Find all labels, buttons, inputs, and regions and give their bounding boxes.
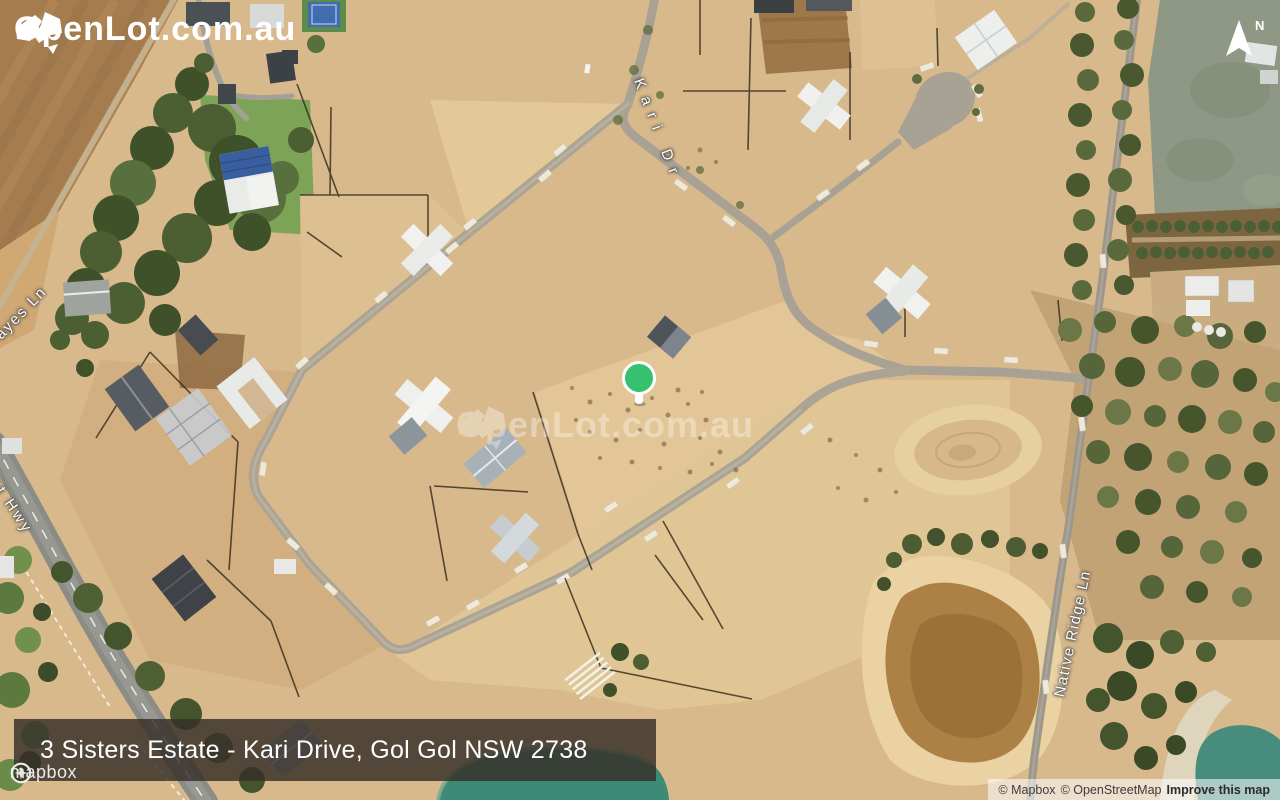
attribution-osm-link[interactable]: © OpenStreetMap [1061, 783, 1162, 797]
attribution-mapbox-link[interactable]: © Mapbox [998, 783, 1055, 797]
mapbox-logo[interactable]: mapbox [10, 762, 77, 783]
mapbox-icon [10, 762, 32, 784]
map-viewport[interactable]: OpenLot.com.au OpenLot.com.au N Kari Dr … [0, 0, 1280, 800]
tennis-court [302, 0, 346, 32]
solar-roof-house [219, 146, 279, 214]
improve-this-map-link[interactable]: Improve this map [1167, 783, 1271, 797]
map-attribution: © Mapbox © OpenStreetMap Improve this ma… [988, 779, 1280, 800]
satellite-map[interactable] [0, 0, 1280, 800]
